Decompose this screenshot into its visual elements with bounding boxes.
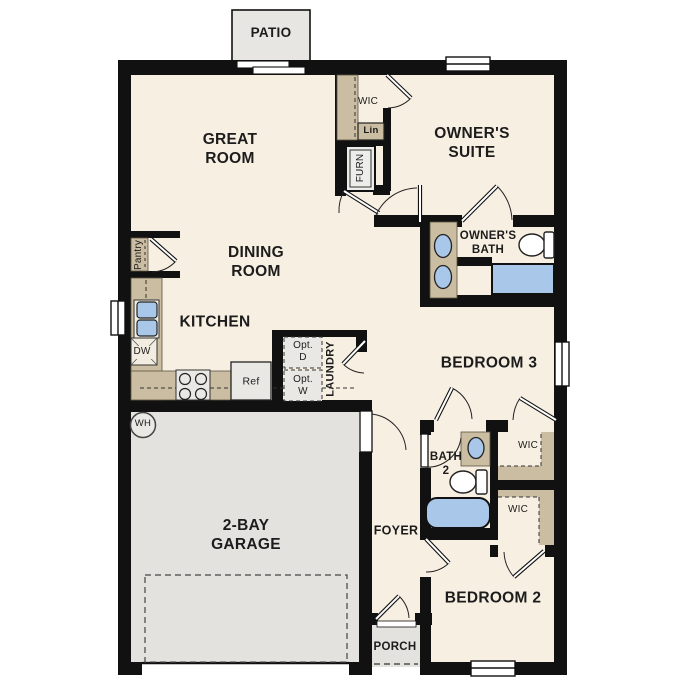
patio-slab (232, 10, 310, 62)
owners-bath-tub-icon (492, 264, 554, 294)
dishwasher-icon (131, 338, 157, 365)
vanity-sink-icon (435, 266, 452, 289)
bath2-toilet-icon (450, 470, 487, 494)
water-heater-icon (131, 413, 156, 438)
bath2-tub-icon (426, 498, 490, 528)
kitchen-sink-icon (137, 302, 157, 318)
furnace-icon (346, 146, 375, 191)
linen-closet (358, 123, 384, 140)
bath2-sink-icon (468, 438, 484, 459)
kitchen-sink-icon2 (137, 320, 157, 336)
front-threshold (377, 621, 416, 627)
optional-dryer-box (284, 337, 322, 368)
floor-plan: PATIO GREAT ROOM WIC Lin FURN OWNER'S SU… (0, 0, 687, 687)
optional-washer-box (284, 370, 322, 401)
range-icon (176, 370, 210, 400)
refrigerator-icon (231, 362, 271, 400)
vanity-sink-icon (435, 235, 452, 258)
owners-bath-toilet-icon (519, 232, 554, 258)
garage-floor (131, 412, 359, 662)
pantry-closet (131, 238, 148, 271)
porch-edge (372, 667, 420, 675)
floor-plan-drawing (0, 0, 687, 687)
porch-slab (372, 625, 420, 667)
